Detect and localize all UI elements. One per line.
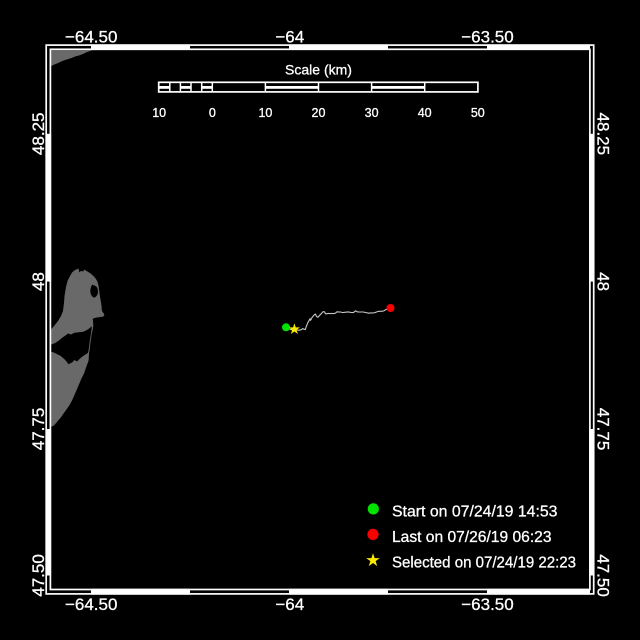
svg-text:40: 40	[418, 106, 432, 120]
svg-text:−63.50: −63.50	[461, 27, 513, 46]
svg-text:−63.50: −63.50	[461, 595, 513, 614]
svg-text:−64.50: −64.50	[65, 595, 117, 614]
svg-text:Start on 07/24/19 14:53: Start on 07/24/19 14:53	[392, 504, 558, 521]
svg-text:0: 0	[209, 106, 216, 120]
svg-text:48.25: 48.25	[29, 113, 48, 156]
svg-text:−64: −64	[275, 27, 304, 46]
svg-text:Last on 07/26/19 06:23: Last on 07/26/19 06:23	[392, 529, 552, 546]
svg-text:47.75: 47.75	[594, 408, 613, 451]
svg-text:10: 10	[152, 106, 166, 120]
svg-text:Scale (km): Scale (km)	[285, 62, 352, 78]
svg-text:48.25: 48.25	[594, 113, 613, 156]
svg-text:47.50: 47.50	[29, 554, 48, 597]
svg-text:48: 48	[29, 272, 48, 291]
svg-text:50: 50	[471, 106, 485, 120]
svg-text:30: 30	[365, 106, 379, 120]
svg-text:48: 48	[594, 272, 613, 291]
svg-text:47.75: 47.75	[29, 408, 48, 451]
svg-text:20: 20	[312, 106, 326, 120]
svg-text:47.50: 47.50	[594, 554, 613, 597]
svg-text:Selected on 07/24/19 22:23: Selected on 07/24/19 22:23	[392, 555, 576, 572]
svg-text:−64: −64	[275, 595, 304, 614]
svg-text:−64.50: −64.50	[65, 27, 117, 46]
svg-text:10: 10	[258, 106, 272, 120]
